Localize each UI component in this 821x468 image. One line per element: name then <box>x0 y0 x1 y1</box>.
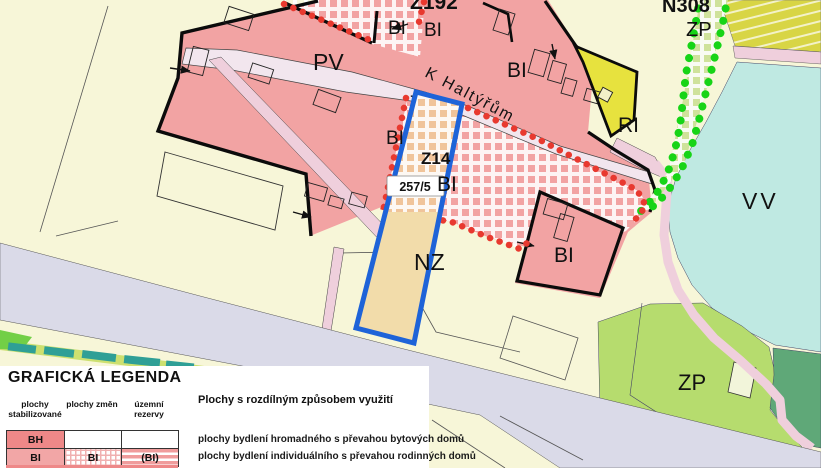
legend-col-header-changes: plochy změn <box>64 399 120 409</box>
legend-table: BH BI BI (BI) <box>6 430 179 467</box>
legend-swatch-bi-stab: BI <box>7 449 64 466</box>
label-zp-top: ZP <box>686 19 712 41</box>
label-pv: PV <box>313 49 344 75</box>
legend-swatch-bh-stab: BH <box>7 431 64 448</box>
legend-desc-bi: plochy bydlení individuálního s převahou… <box>198 451 476 462</box>
map-legend: GRAFICKÁ LEGENDA plochy stabilizované pl… <box>0 366 429 468</box>
label-z192: Z192 <box>410 0 458 14</box>
label-bi-left: BI <box>386 128 404 149</box>
parcel-number-box: 257/5 <box>387 176 444 196</box>
parcel-number-label: 257/5 <box>399 180 430 194</box>
label-bi-top-right: BI <box>507 59 527 82</box>
legend-section-header: Plochy s rozdílným způsobem využití <box>198 394 393 406</box>
legend-col-header-reserves: územní rezervy <box>121 399 177 419</box>
orchard-area[interactable] <box>720 0 821 52</box>
label-vv: VV <box>742 188 779 214</box>
label-bi-top-mid: BI <box>424 20 442 41</box>
zoning-map-viewer: 257/5 Z192 BI BI BI PV K Haltýřům BI Z14… <box>0 0 821 468</box>
label-bi-right: BI <box>554 244 574 267</box>
label-zp-bottom: ZP <box>678 370 706 395</box>
label-z14: Z14 <box>421 149 451 168</box>
legend-row-bh: BH <box>7 431 178 448</box>
label-n308: N308 <box>662 0 710 17</box>
label-nz: NZ <box>414 249 445 275</box>
legend-col-header-stabilized: plochy stabilizované <box>6 399 64 419</box>
legend-title: GRAFICKÁ LEGENDA <box>8 369 182 387</box>
legend-swatch-bi-reserve: (BI) <box>121 449 178 466</box>
legend-desc-bh: plochy bydlení hromadného s převahou byt… <box>198 434 464 445</box>
label-bi-center: BI <box>437 173 457 196</box>
label-bi-top-left: BI <box>388 18 406 39</box>
legend-swatch-bh-reserve <box>121 431 178 448</box>
legend-swatch-bh-changes <box>64 431 121 448</box>
label-ri: RI <box>618 114 639 137</box>
legend-swatch-bi-changes: BI <box>64 449 121 466</box>
legend-row-bi: BI BI (BI) <box>7 448 178 466</box>
